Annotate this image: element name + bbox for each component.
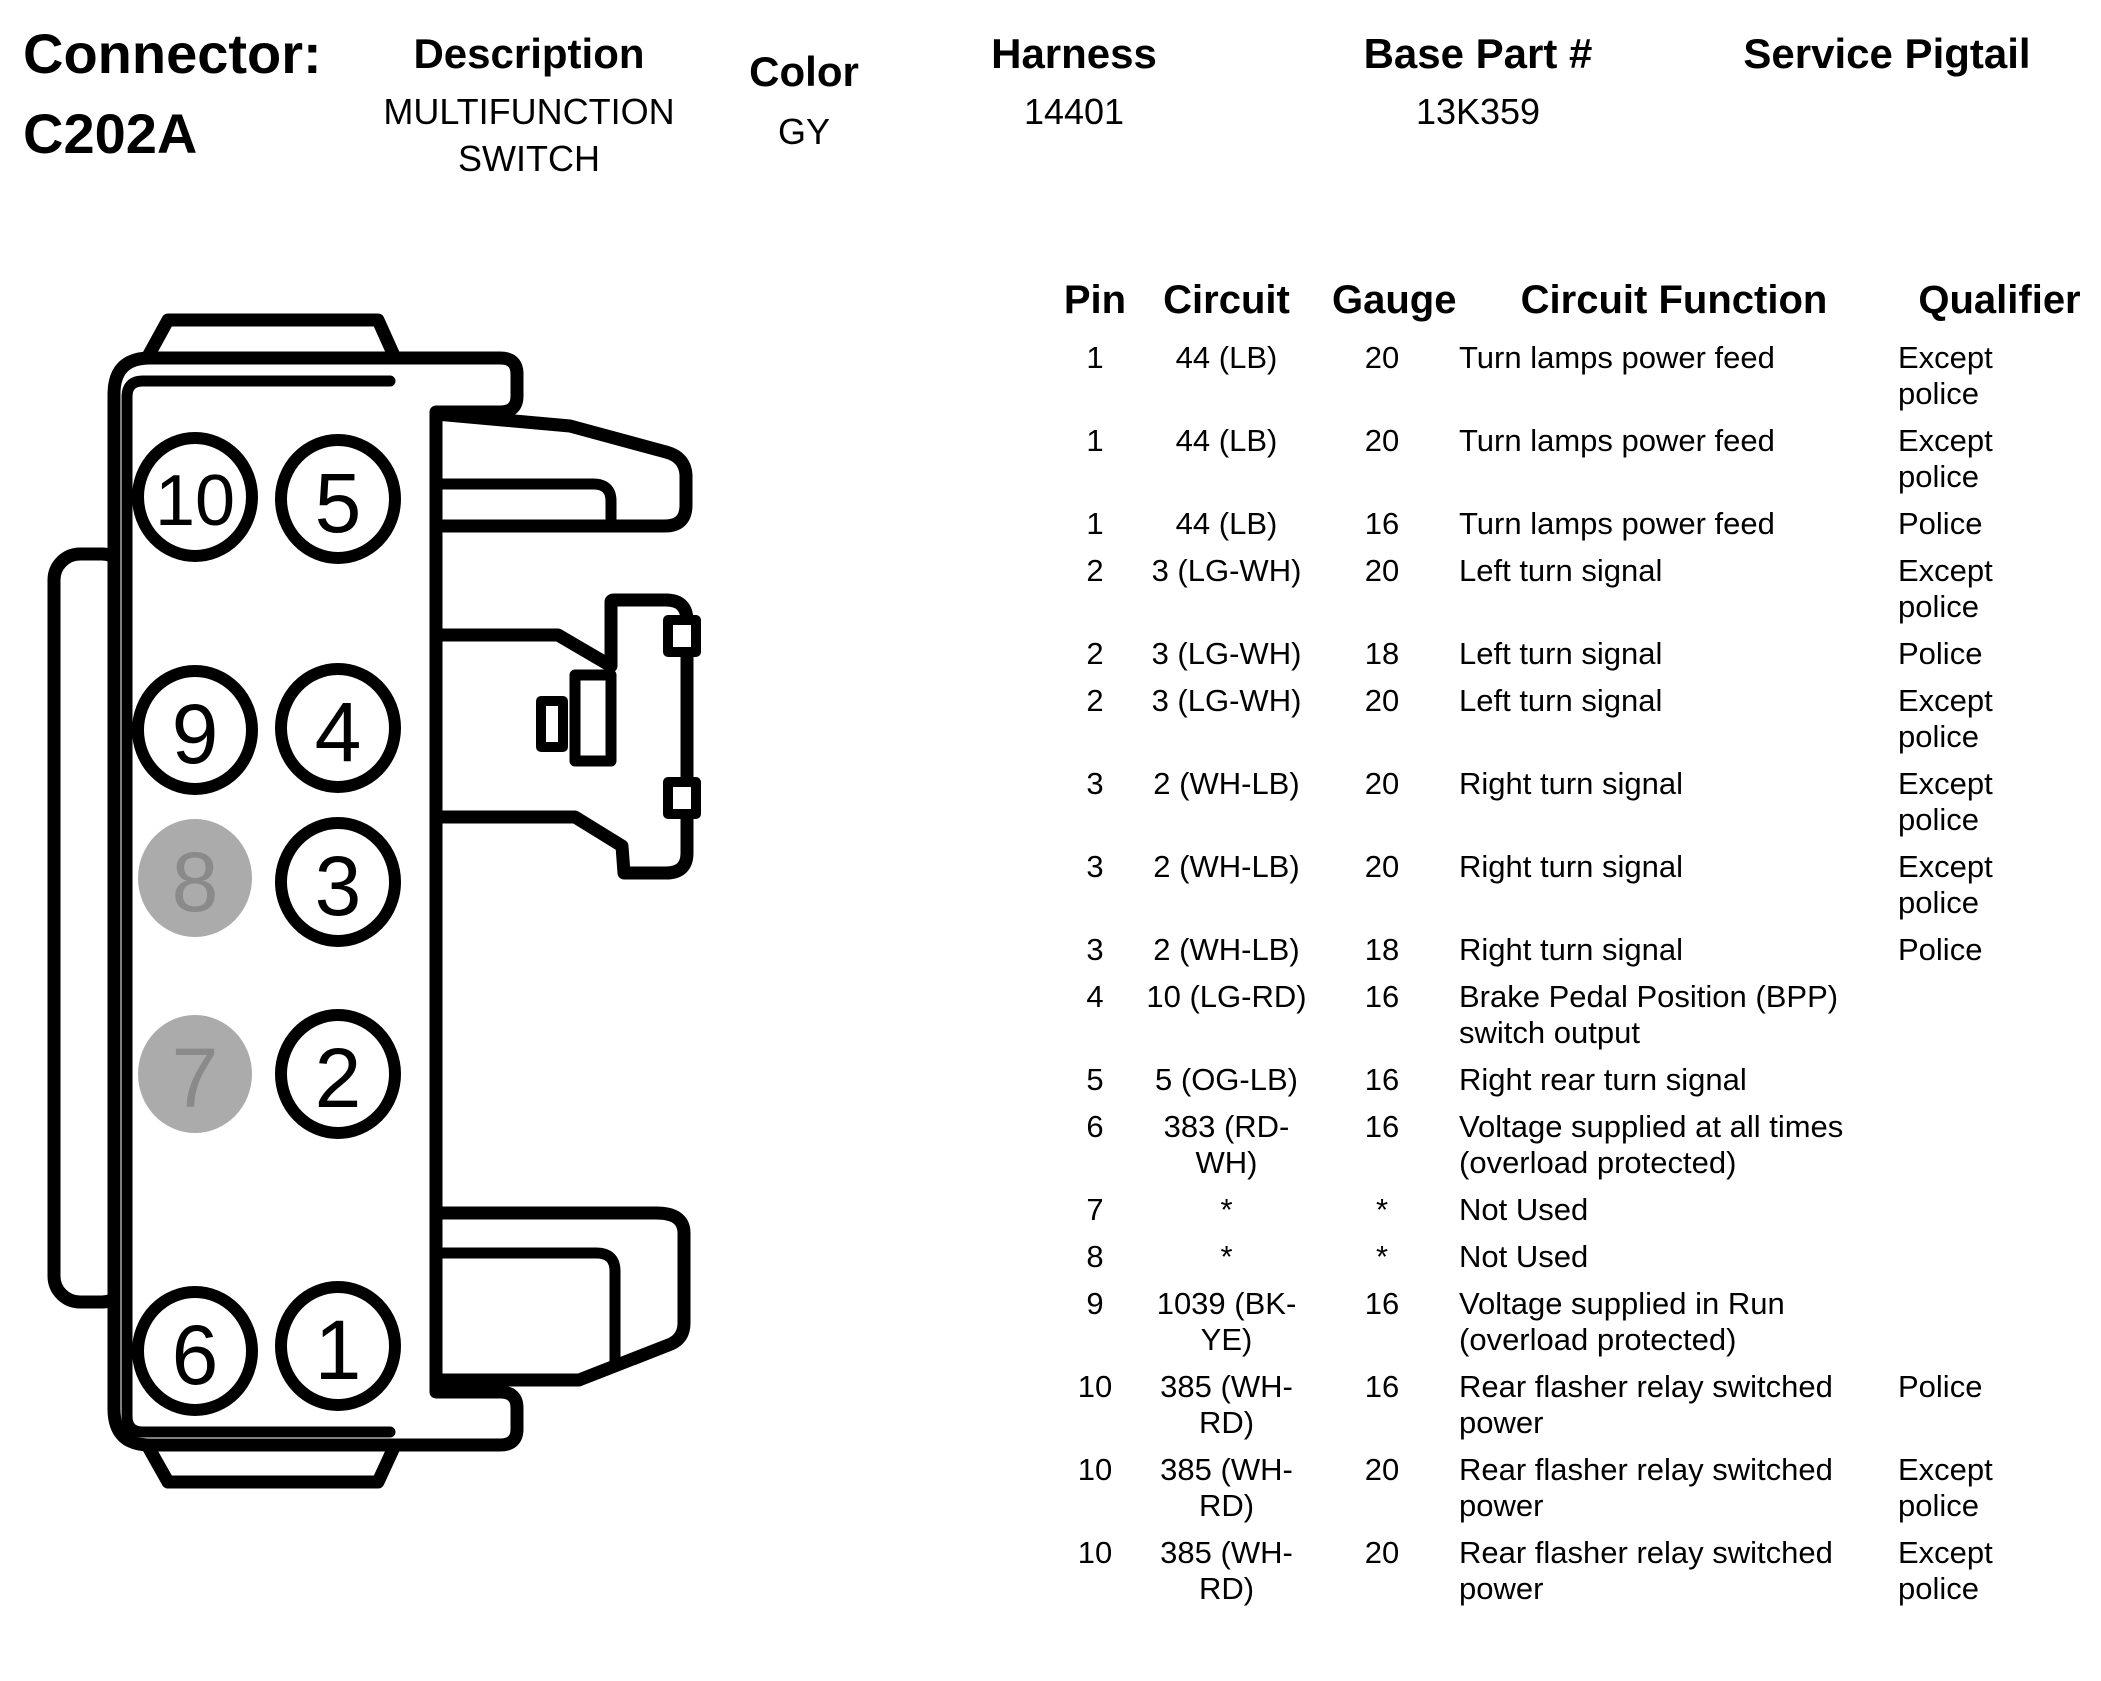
table-row: 7**Not Used bbox=[1040, 1192, 2101, 1228]
cell-circuit-function: Left turn signal bbox=[1459, 553, 1889, 589]
cell-circuit-function: Rear flasher relay switchedpower bbox=[1459, 1369, 1889, 1441]
table-row: 91039 (BK-YE)16Voltage supplied in Run(o… bbox=[1040, 1286, 2101, 1358]
cell-pin: 10 bbox=[1040, 1452, 1150, 1488]
table-row: 32 (WH-LB)20Right turn signalExceptpolic… bbox=[1040, 849, 2101, 921]
connector-bottom-arm bbox=[436, 1213, 684, 1380]
table-row: 10385 (WH-RD)20Rear flasher relay switch… bbox=[1040, 1535, 2101, 1607]
cell-circuit-function: Not Used bbox=[1459, 1192, 1889, 1228]
pin-1: 1 bbox=[281, 1287, 395, 1405]
pin-number: 10 bbox=[155, 461, 235, 541]
pin-number: 2 bbox=[315, 1031, 362, 1125]
table-row: 10385 (WH-RD)16Rear flasher relay switch… bbox=[1040, 1369, 2101, 1441]
table-row: 144 (LB)16Turn lamps power feedPolice bbox=[1040, 506, 2101, 542]
column-header-gauge: Gauge bbox=[1332, 278, 1432, 322]
connector-top-arm bbox=[436, 414, 686, 526]
cell-qualifier: Exceptpolice bbox=[1898, 849, 2101, 921]
cell-circuit: 10 (LG-RD) bbox=[1139, 979, 1314, 1015]
cell-pin: 6 bbox=[1040, 1109, 1150, 1145]
table-row: 410 (LG-RD)16Brake Pedal Position (BPP)s… bbox=[1040, 979, 2101, 1051]
table-row: 6383 (RD-WH)16Voltage supplied at all ti… bbox=[1040, 1109, 2101, 1181]
cell-qualifier: Police bbox=[1898, 932, 2101, 968]
cell-gauge: 20 bbox=[1332, 683, 1432, 719]
cell-gauge: 16 bbox=[1332, 979, 1432, 1015]
pin-10: 10 bbox=[138, 438, 252, 556]
header-field-harness: Harness14401 bbox=[904, 30, 1244, 135]
cell-gauge: 16 bbox=[1332, 1062, 1432, 1098]
cell-pin: 9 bbox=[1040, 1286, 1150, 1322]
cell-circuit-function: Left turn signal bbox=[1459, 636, 1889, 672]
cell-qualifier: Exceptpolice bbox=[1898, 340, 2101, 412]
connector-mid-latch-stem bbox=[575, 675, 611, 761]
table-row: 10385 (WH-RD)20Rear flasher relay switch… bbox=[1040, 1452, 2101, 1524]
cell-circuit-function: Rear flasher relay switchedpower bbox=[1459, 1452, 1889, 1524]
cell-gauge: 20 bbox=[1332, 423, 1432, 459]
pin-table: 144 (LB)20Turn lamps power feedExceptpol… bbox=[1040, 340, 2101, 1618]
cell-circuit: 3 (LG-WH) bbox=[1139, 553, 1314, 589]
cell-gauge: 20 bbox=[1332, 340, 1432, 376]
table-row: 8**Not Used bbox=[1040, 1239, 2101, 1275]
connector-title: Connector: C202A bbox=[23, 14, 322, 174]
cell-pin: 10 bbox=[1040, 1535, 1150, 1571]
cell-circuit: 385 (WH-RD) bbox=[1139, 1369, 1314, 1441]
cell-gauge: 16 bbox=[1332, 506, 1432, 542]
connector-mid-latch-bump-bottom bbox=[668, 782, 696, 814]
cell-qualifier: Exceptpolice bbox=[1898, 553, 2101, 625]
cell-pin: 3 bbox=[1040, 849, 1150, 885]
table-row: 55 (OG-LB)16Right rear turn signal bbox=[1040, 1062, 2101, 1098]
cell-circuit: 44 (LB) bbox=[1139, 340, 1314, 376]
cell-gauge: * bbox=[1332, 1192, 1432, 1228]
connector-pinout-page: Connector: C202A DescriptionMULTIFUNCTIO… bbox=[0, 0, 2101, 1681]
connector-id: C202A bbox=[23, 94, 322, 174]
cell-pin: 1 bbox=[1040, 340, 1150, 376]
cell-circuit-function: Right turn signal bbox=[1459, 766, 1889, 802]
cell-pin: 2 bbox=[1040, 553, 1150, 589]
cell-gauge: 16 bbox=[1332, 1286, 1432, 1322]
cell-circuit: 2 (WH-LB) bbox=[1139, 932, 1314, 968]
pin-2: 2 bbox=[281, 1015, 395, 1133]
cell-circuit: 3 (LG-WH) bbox=[1139, 636, 1314, 672]
cell-circuit-function: Right turn signal bbox=[1459, 932, 1889, 968]
table-row: 23 (LG-WH)20Left turn signalExceptpolice bbox=[1040, 553, 2101, 625]
cell-circuit: 44 (LB) bbox=[1139, 423, 1314, 459]
cell-gauge: 18 bbox=[1332, 932, 1432, 968]
cell-qualifier: Exceptpolice bbox=[1898, 683, 2101, 755]
table-row: 32 (WH-LB)18Right turn signalPolice bbox=[1040, 932, 2101, 968]
pin-table-header: PinCircuitGaugeCircuit FunctionQualifier bbox=[1040, 278, 2101, 328]
cell-pin: 2 bbox=[1040, 683, 1150, 719]
cell-pin: 7 bbox=[1040, 1192, 1150, 1228]
cell-gauge: 16 bbox=[1332, 1369, 1432, 1405]
cell-circuit-function: Turn lamps power feed bbox=[1459, 506, 1889, 542]
cell-qualifier: Police bbox=[1898, 506, 2101, 542]
pin-number: 4 bbox=[315, 685, 362, 779]
cell-circuit: 2 (WH-LB) bbox=[1139, 766, 1314, 802]
pin-5: 5 bbox=[281, 440, 395, 558]
field-value: 14401 bbox=[904, 88, 1244, 135]
cell-pin: 5 bbox=[1040, 1062, 1150, 1098]
pin-number: 8 bbox=[172, 835, 219, 929]
pin-number: 5 bbox=[315, 456, 362, 550]
cell-circuit: 44 (LB) bbox=[1139, 506, 1314, 542]
cell-circuit-function: Right rear turn signal bbox=[1459, 1062, 1889, 1098]
cell-circuit: 3 (LG-WH) bbox=[1139, 683, 1314, 719]
cell-gauge: 20 bbox=[1332, 849, 1432, 885]
cell-pin: 3 bbox=[1040, 932, 1150, 968]
cell-gauge: 20 bbox=[1332, 1535, 1432, 1571]
field-value: 13K359 bbox=[1288, 88, 1668, 135]
connector-mid-latch-key bbox=[541, 701, 563, 747]
pin-9: 9 bbox=[138, 671, 252, 789]
cell-circuit-function: Not Used bbox=[1459, 1239, 1889, 1275]
cell-circuit-function: Brake Pedal Position (BPP)switch output bbox=[1459, 979, 1889, 1051]
cell-pin: 4 bbox=[1040, 979, 1150, 1015]
cell-circuit: 1039 (BK-YE) bbox=[1139, 1286, 1314, 1358]
table-row: 144 (LB)20Turn lamps power feedExceptpol… bbox=[1040, 423, 2101, 495]
cell-gauge: * bbox=[1332, 1239, 1432, 1275]
cell-circuit-function: Right turn signal bbox=[1459, 849, 1889, 885]
cell-qualifier: Exceptpolice bbox=[1898, 1535, 2101, 1607]
field-label: Service Pigtail bbox=[1677, 30, 2097, 78]
cell-pin: 8 bbox=[1040, 1239, 1150, 1275]
table-row: 23 (LG-WH)18Left turn signalPolice bbox=[1040, 636, 2101, 672]
cell-gauge: 20 bbox=[1332, 766, 1432, 802]
cell-pin: 1 bbox=[1040, 506, 1150, 542]
column-header-circuit-function: Circuit Function bbox=[1459, 278, 1889, 322]
cell-circuit-function: Voltage supplied at all times(overload p… bbox=[1459, 1109, 1889, 1181]
cell-gauge: 16 bbox=[1332, 1109, 1432, 1145]
pin-6: 6 bbox=[138, 1292, 252, 1410]
table-row: 23 (LG-WH)20Left turn signalExceptpolice bbox=[1040, 683, 2101, 755]
cell-circuit: * bbox=[1139, 1239, 1314, 1275]
pin-8: 8 bbox=[138, 819, 252, 937]
cell-pin: 1 bbox=[1040, 423, 1150, 459]
connector-diagram: 10594837261 bbox=[30, 270, 770, 1600]
column-header-circuit: Circuit bbox=[1139, 278, 1314, 322]
cell-circuit: 385 (WH-RD) bbox=[1139, 1535, 1314, 1607]
header-field-service-pigtail: Service Pigtail bbox=[1677, 30, 2097, 88]
pin-number: 3 bbox=[315, 839, 362, 933]
pin-number: 9 bbox=[172, 687, 219, 781]
pin-number: 6 bbox=[172, 1308, 219, 1402]
connector-mid-latch-bump-top bbox=[668, 620, 696, 652]
pin-3: 3 bbox=[281, 823, 395, 941]
cell-qualifier: Exceptpolice bbox=[1898, 423, 2101, 495]
pin-7: 7 bbox=[138, 1015, 252, 1133]
cell-pin: 10 bbox=[1040, 1369, 1150, 1405]
cell-circuit: 2 (WH-LB) bbox=[1139, 849, 1314, 885]
cell-circuit: 5 (OG-LB) bbox=[1139, 1062, 1314, 1098]
cell-gauge: 18 bbox=[1332, 636, 1432, 672]
cell-qualifier: Exceptpolice bbox=[1898, 766, 2101, 838]
cell-qualifier: Police bbox=[1898, 1369, 2101, 1405]
cell-pin: 3 bbox=[1040, 766, 1150, 802]
cell-circuit-function: Left turn signal bbox=[1459, 683, 1889, 719]
cell-circuit-function: Turn lamps power feed bbox=[1459, 423, 1889, 459]
cell-circuit-function: Voltage supplied in Run(overload protect… bbox=[1459, 1286, 1889, 1358]
field-label: Harness bbox=[904, 30, 1244, 78]
column-header-qualifier: Qualifier bbox=[1898, 278, 2101, 322]
cell-gauge: 20 bbox=[1332, 553, 1432, 589]
header-field-base-part-: Base Part #13K359 bbox=[1288, 30, 1668, 135]
cell-circuit: 385 (WH-RD) bbox=[1139, 1452, 1314, 1524]
pin-4: 4 bbox=[281, 669, 395, 787]
cell-qualifier: Police bbox=[1898, 636, 2101, 672]
pin-number: 7 bbox=[172, 1031, 219, 1125]
cell-qualifier: Exceptpolice bbox=[1898, 1452, 2101, 1524]
cell-gauge: 20 bbox=[1332, 1452, 1432, 1488]
connector-label: Connector: bbox=[23, 14, 322, 94]
cell-circuit: 383 (RD-WH) bbox=[1139, 1109, 1314, 1181]
column-header-pin: Pin bbox=[1040, 278, 1150, 322]
cell-pin: 2 bbox=[1040, 636, 1150, 672]
cell-circuit-function: Turn lamps power feed bbox=[1459, 340, 1889, 376]
pin-number: 1 bbox=[315, 1303, 362, 1397]
field-label: Base Part # bbox=[1288, 30, 1668, 78]
cell-circuit: * bbox=[1139, 1192, 1314, 1228]
cell-circuit-function: Rear flasher relay switchedpower bbox=[1459, 1535, 1889, 1607]
table-row: 32 (WH-LB)20Right turn signalExceptpolic… bbox=[1040, 766, 2101, 838]
table-row: 144 (LB)20Turn lamps power feedExceptpol… bbox=[1040, 340, 2101, 412]
